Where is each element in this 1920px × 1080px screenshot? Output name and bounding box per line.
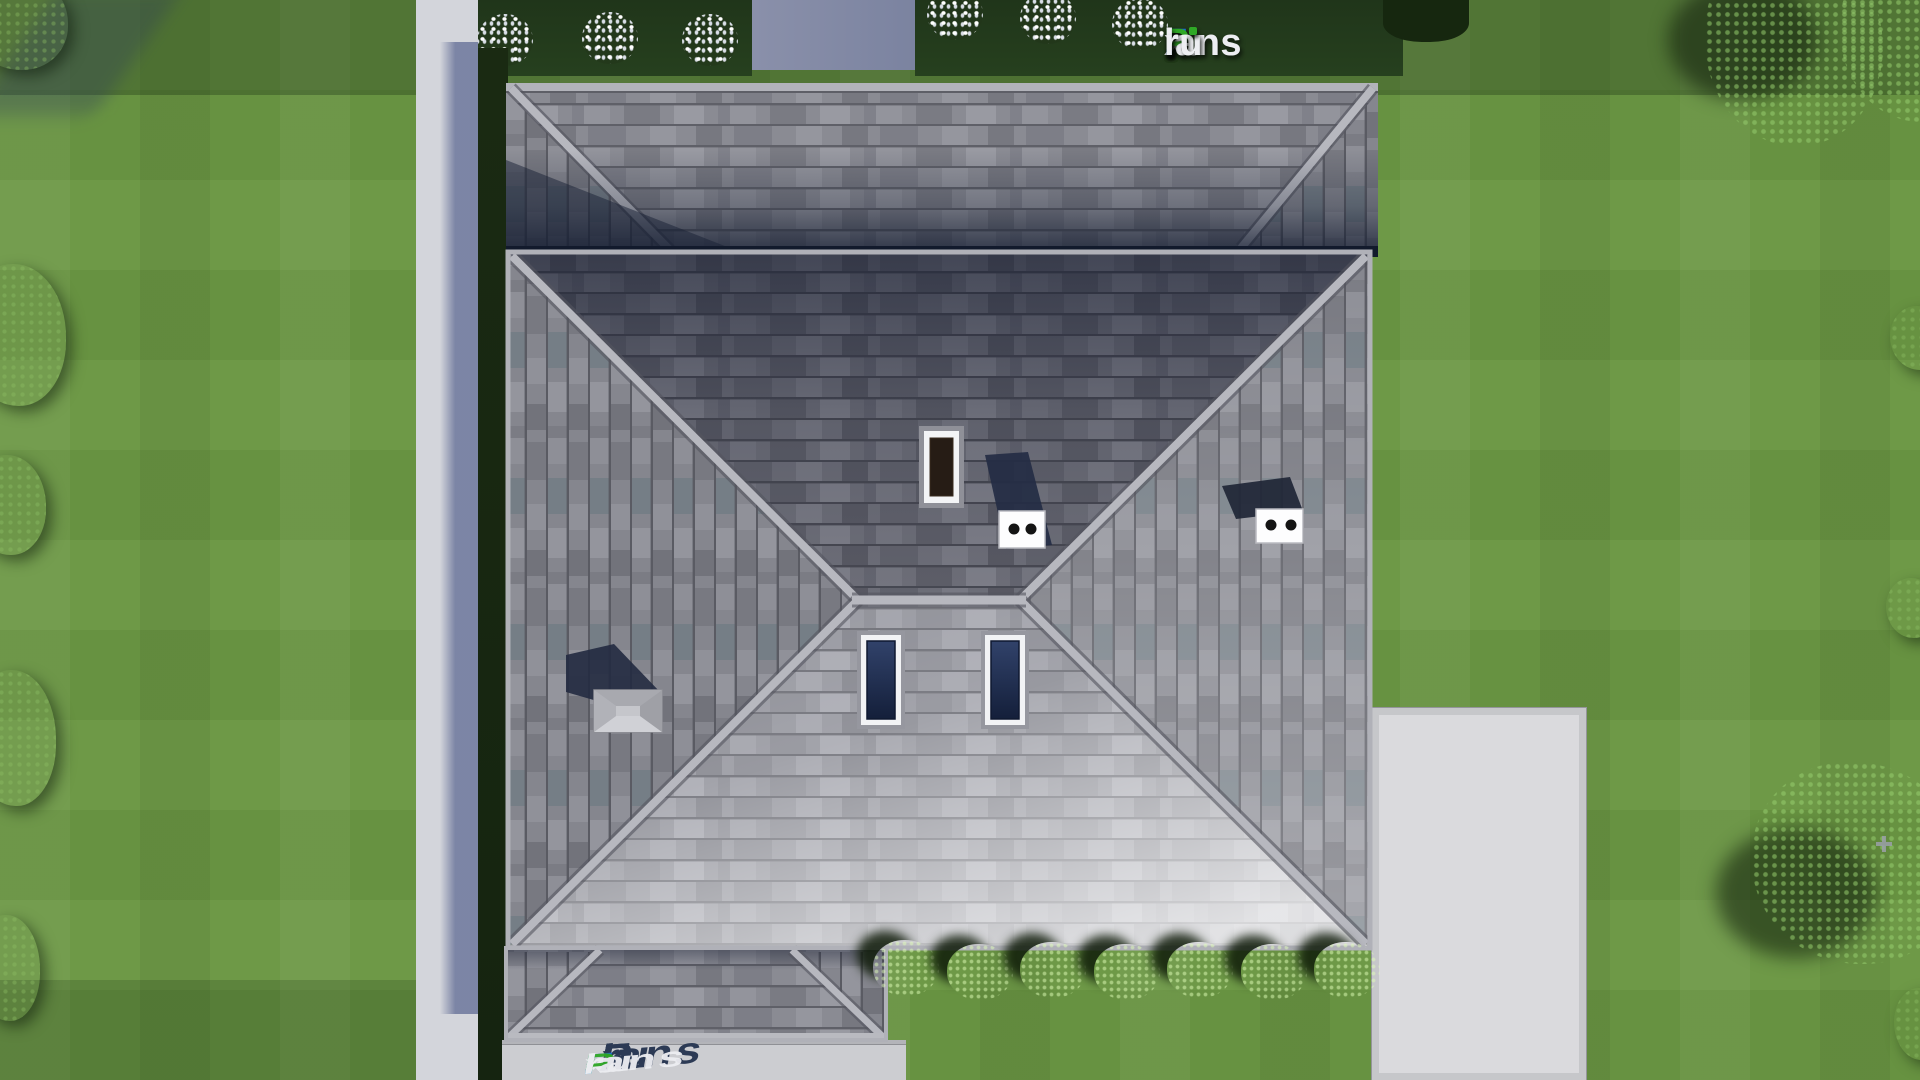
garage-roof (506, 948, 886, 1041)
south-bush (1094, 944, 1160, 1000)
roof-render (0, 0, 1920, 1080)
roof-vent-box (1256, 509, 1303, 543)
skylight (857, 631, 905, 729)
skylight (981, 631, 1029, 729)
main-hip-roof (508, 252, 1370, 948)
rear-roof-section (506, 83, 1378, 257)
logo-segment: ru (1164, 22, 1203, 65)
south-bush (1167, 942, 1233, 998)
south-bush (947, 944, 1013, 1000)
roof-vent-box (999, 511, 1045, 548)
aerial-render-scene: FixPlans.ru FixPlans.ru FixPlans.ru (0, 0, 1920, 1080)
south-bush (873, 940, 939, 996)
south-bush (1314, 942, 1380, 998)
chimney (919, 426, 964, 508)
ground-watermark: FixPlans.ru FixPlans.ru (585, 1032, 930, 1080)
south-bush (1020, 942, 1086, 998)
logo-i-dot (1189, 27, 1197, 35)
logo-segment: ru (585, 1043, 639, 1080)
south-bush (1241, 944, 1307, 1000)
marker-bar (1882, 836, 1886, 852)
pyramid-roof-vent (594, 690, 662, 732)
small-plus-marker (1876, 836, 1892, 852)
